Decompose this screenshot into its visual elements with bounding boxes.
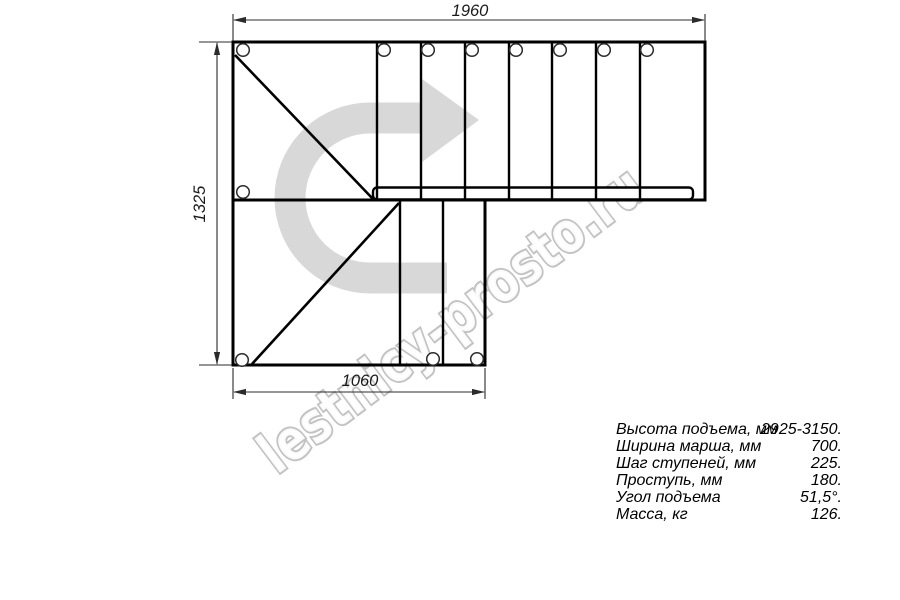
spec-label: Шаг ступеней, мм (616, 455, 756, 472)
spec-row: Масса, кг 126. (616, 506, 842, 523)
mounting-hole (641, 44, 654, 57)
spec-table: Высота подъема, мм 2925-3150. Ширина мар… (615, 421, 842, 523)
mounting-hole (471, 353, 484, 366)
spec-row: Высота подъема, мм 2925-3150. (616, 421, 842, 438)
u-turn-arrow-icon (290, 79, 479, 278)
spec-row: Ширина марша, мм 700. (616, 438, 842, 455)
arrowhead-top (214, 42, 220, 55)
spec-row: Проступь, мм 180. (616, 472, 842, 489)
dimension-bottom-label: 1060 (342, 372, 380, 390)
mounting-hole (510, 44, 523, 57)
arrowhead-right (692, 17, 705, 23)
stair-plan-drawing: lestnicy-prosto.ru (0, 0, 900, 600)
mounting-hole (427, 353, 440, 366)
arrowhead-right (472, 389, 485, 395)
mounting-hole (554, 44, 567, 57)
spec-value: 126. (811, 506, 842, 523)
spec-label: Масса, кг (616, 506, 688, 523)
mounting-hole (378, 44, 391, 57)
mounting-hole (598, 44, 611, 57)
spec-label: Проступь, мм (616, 472, 722, 489)
spec-label: Высота подъема, мм (616, 421, 778, 438)
mounting-hole (237, 44, 250, 57)
spec-value: 51,5°. (800, 489, 842, 506)
spec-label: Угол подъема (615, 489, 721, 506)
mounting-hole (236, 354, 249, 367)
spec-value: 180. (811, 472, 842, 489)
spec-row: Шаг ступеней, мм 225. (616, 455, 842, 472)
mounting-hole (466, 44, 479, 57)
spec-row: Угол подъема 51,5°. (615, 489, 842, 506)
watermark-text: lestnicy-prosto.ru (246, 154, 657, 486)
mounting-hole (422, 44, 435, 57)
u-turn-arrow-head (422, 79, 479, 162)
mounting-hole (237, 186, 250, 199)
arrowhead-left (233, 389, 246, 395)
dimension-top-label: 1960 (452, 2, 490, 20)
dimension-left-label: 1325 (191, 185, 209, 223)
stair-plan-page: lestnicy-prosto.ru (0, 0, 900, 600)
spec-value: 2925-3150. (760, 421, 842, 438)
arrowhead-left (233, 17, 246, 23)
spec-value: 225. (810, 455, 842, 472)
spec-value: 700. (811, 438, 842, 455)
spec-label: Ширина марша, мм (616, 438, 761, 455)
arrowhead-bottom (214, 352, 220, 365)
